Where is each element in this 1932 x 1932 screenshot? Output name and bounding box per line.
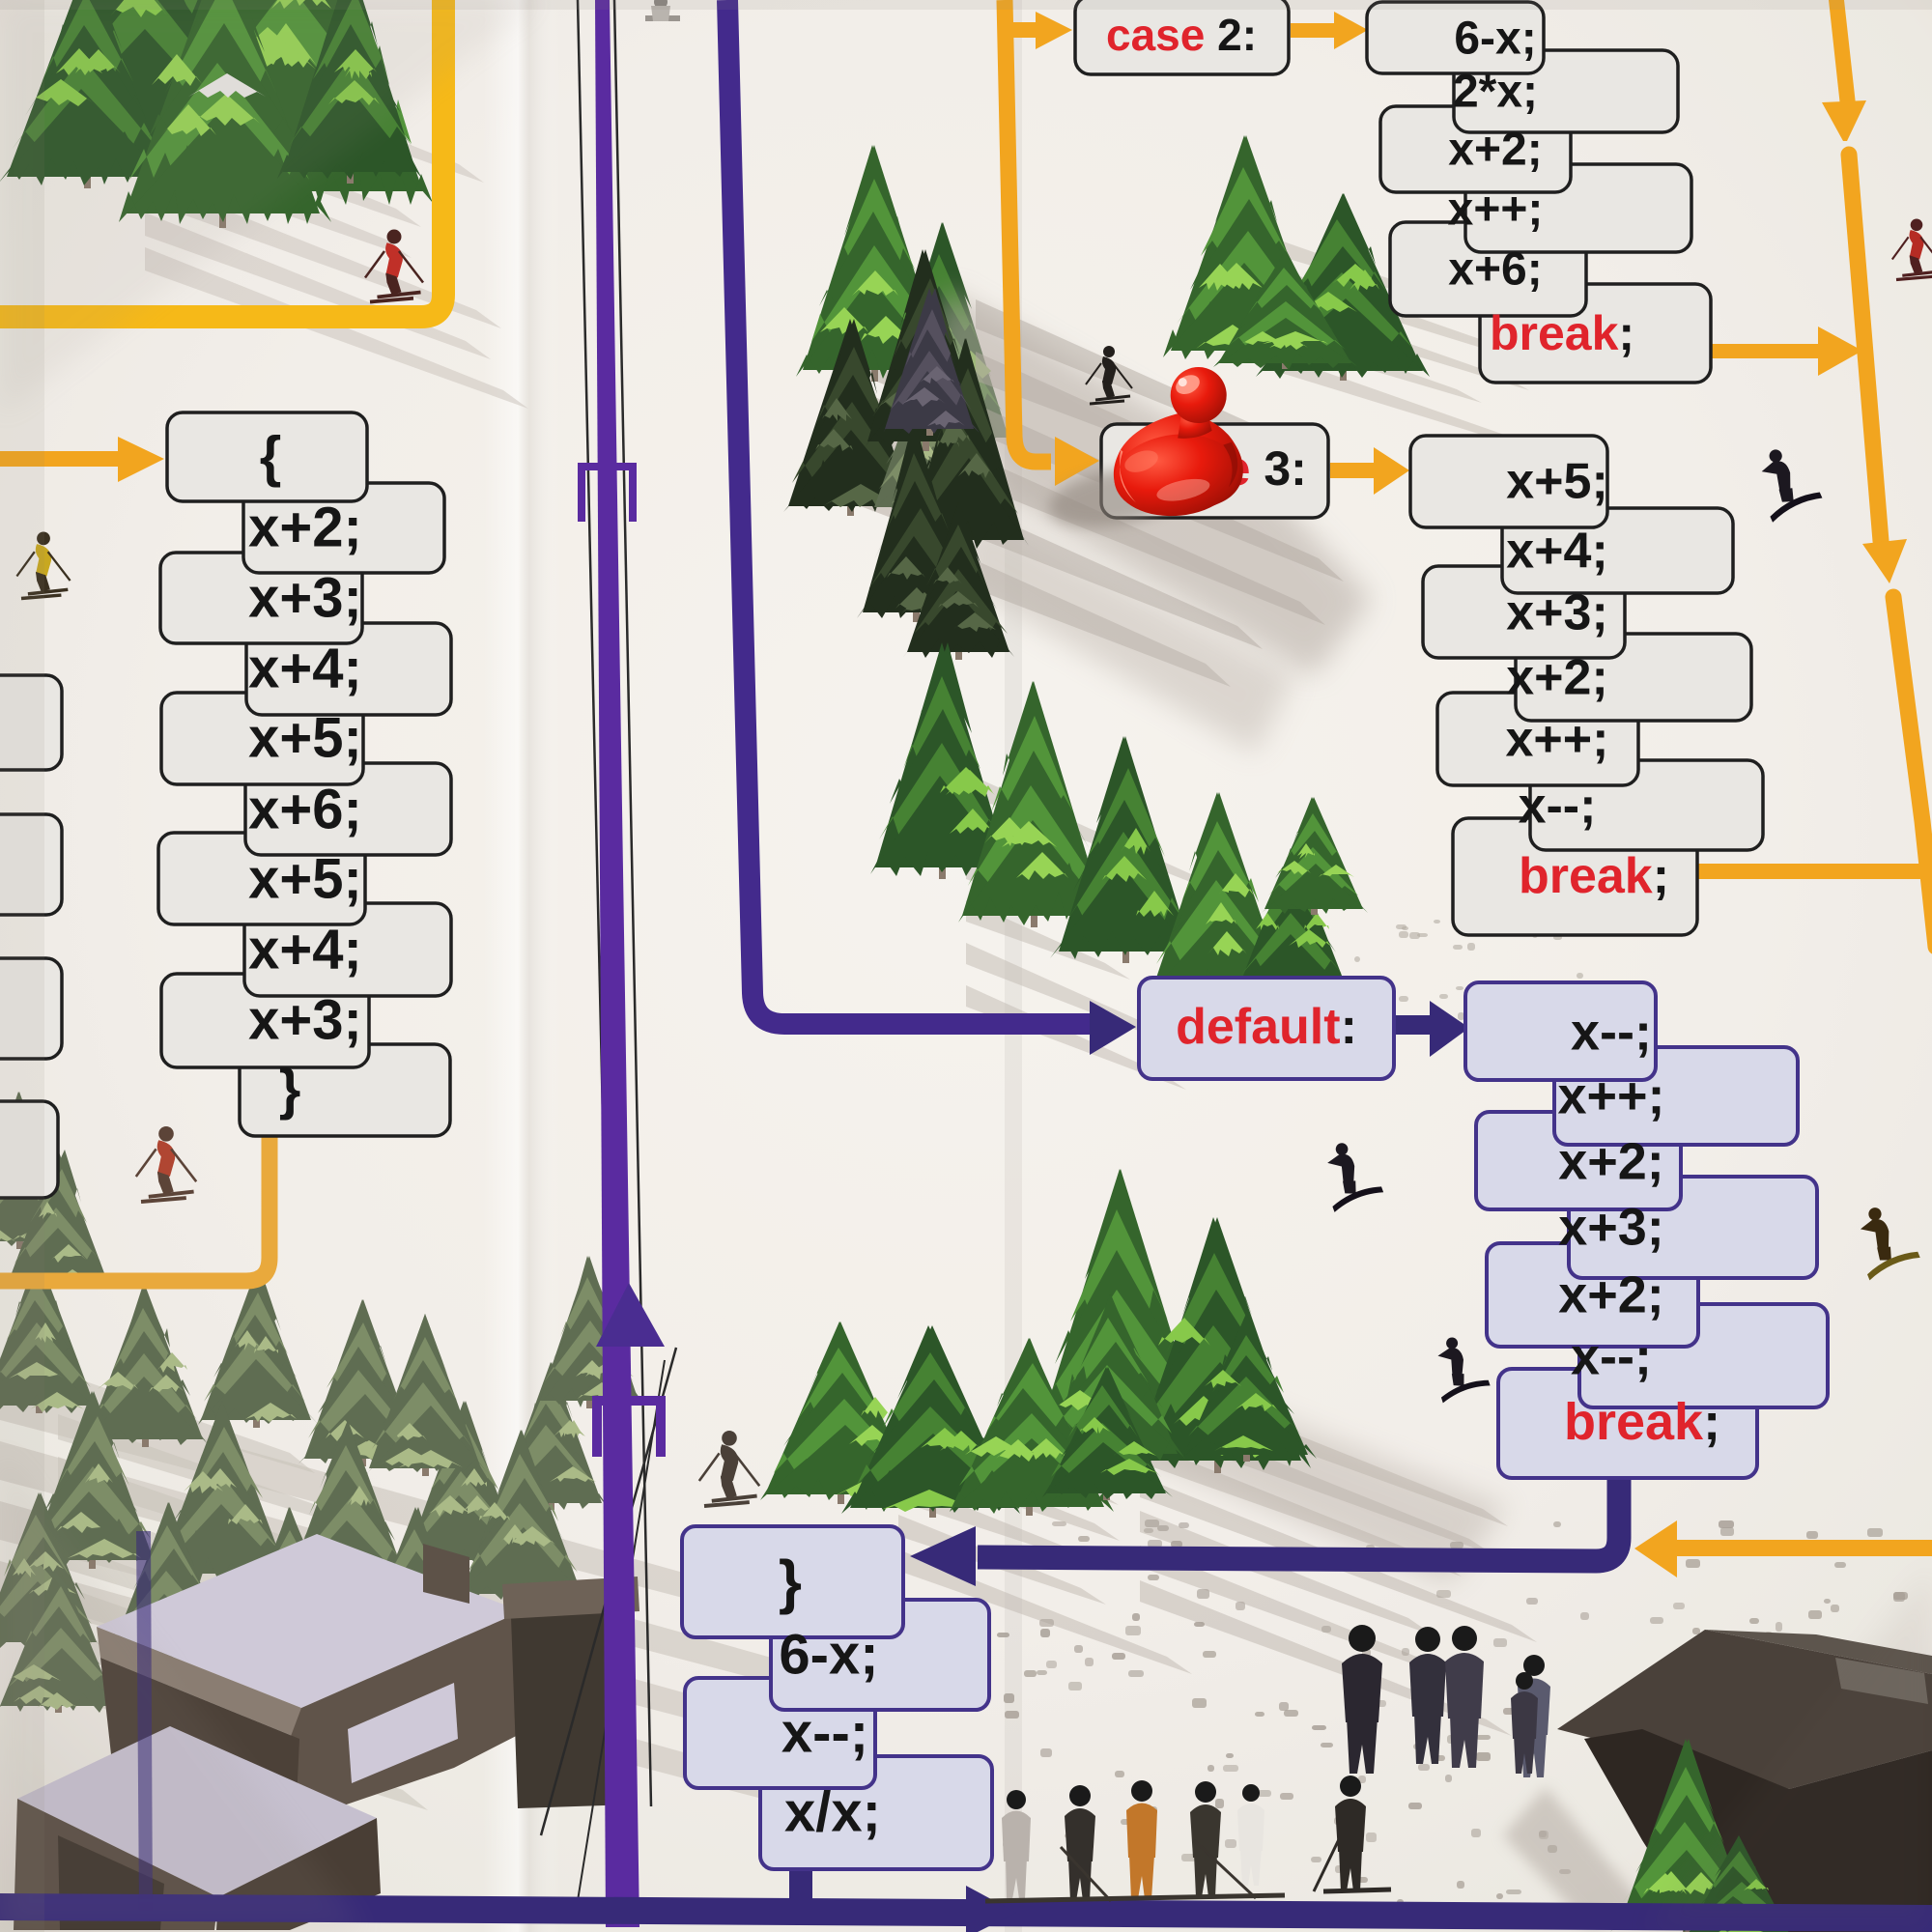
svg-text:x+3;: x+3; <box>1558 1198 1664 1256</box>
svg-text:x++;: x++; <box>1557 1066 1664 1124</box>
svg-text:}: } <box>779 1548 802 1615</box>
svg-text:6-x;: 6-x; <box>1454 14 1536 65</box>
svg-text:}: } <box>279 1058 301 1121</box>
svg-text:x+3;: x+3; <box>248 566 362 629</box>
svg-text:2*x;: 2*x; <box>1453 67 1538 118</box>
svg-text:x+4;: x+4; <box>1506 524 1608 580</box>
svg-text:break;: break; <box>1564 1393 1720 1451</box>
svg-text:x+2;: x+2; <box>1506 650 1608 706</box>
svg-text:x+5;: x+5; <box>248 706 362 769</box>
svg-text:6-x;: 6-x; <box>779 1623 878 1686</box>
svg-text:x+5;: x+5; <box>248 847 362 910</box>
svg-text:default:: default: <box>1176 999 1357 1055</box>
svg-text:x+6;: x+6; <box>248 778 362 840</box>
svg-text:{: { <box>260 425 282 488</box>
svg-text:x--;: x--; <box>1571 1327 1652 1385</box>
svg-text:x++;: x++; <box>1448 185 1544 236</box>
svg-text:x+6;: x+6; <box>1448 244 1542 296</box>
svg-text:x+3;: x+3; <box>248 988 362 1051</box>
svg-text:x/x;: x/x; <box>784 1780 881 1843</box>
svg-text:x--;: x--; <box>1571 1003 1652 1061</box>
svg-text:x--;: x--; <box>781 1701 868 1764</box>
svg-text:x+2;: x+2; <box>1558 1265 1664 1323</box>
svg-text:x+4;: x+4; <box>248 918 362 980</box>
svg-text:x--;: x--; <box>1519 779 1597 835</box>
svg-text:x+2;: x+2; <box>248 496 362 558</box>
svg-text:x++;: x++; <box>1506 712 1609 768</box>
svg-text:x+4;: x+4; <box>248 637 362 699</box>
svg-text:break;: break; <box>1519 848 1669 904</box>
svg-text:x+2;: x+2; <box>1558 1132 1664 1190</box>
svg-text:case 2:: case 2: <box>1106 10 1257 60</box>
svg-text:x+2;: x+2; <box>1448 125 1542 176</box>
svg-text:x+3;: x+3; <box>1506 585 1608 641</box>
svg-text:break;: break; <box>1490 306 1634 360</box>
svg-text:x+5;: x+5; <box>1506 454 1608 510</box>
